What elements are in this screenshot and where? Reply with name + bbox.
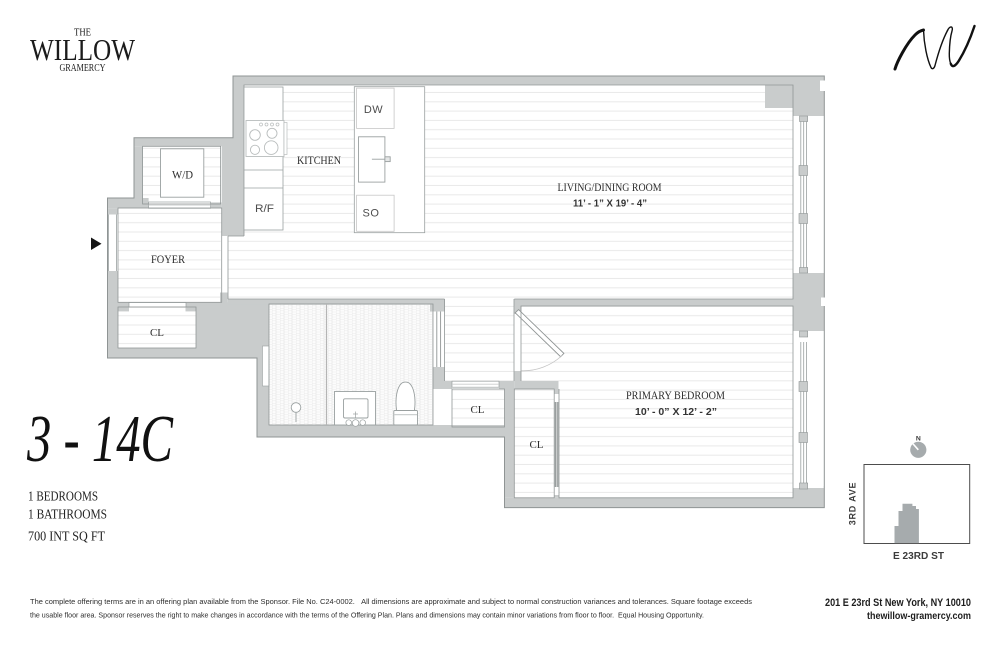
svg-text:3RD AVE: 3RD AVE [848,482,858,526]
svg-text:CL: CL [530,439,544,451]
svg-text:700 INT SQ FT: 700 INT SQ FT [28,530,105,545]
svg-text:CL: CL [471,404,485,416]
svg-text:N: N [916,436,921,443]
svg-text:10’ - 0” X 12’ - 2”: 10’ - 0” X 12’ - 2” [635,407,717,418]
svg-text:CL: CL [150,327,164,339]
svg-text:1 BATHROOMS: 1 BATHROOMS [28,508,107,523]
svg-text:GRAMERCY: GRAMERCY [60,63,106,74]
svg-text:1 BEDROOMS: 1 BEDROOMS [28,490,98,505]
svg-text:thewillow-gramercy.com: thewillow-gramercy.com [867,610,971,622]
svg-text:W/D: W/D [172,170,193,182]
svg-text:WILLOW: WILLOW [30,33,135,67]
svg-text:201 E 23rd St New York, NY 100: 201 E 23rd St New York, NY 10010 [825,597,971,609]
svg-text:E 23RD ST: E 23RD ST [893,551,944,562]
svg-text:SO: SO [363,208,380,220]
svg-text:the usable floor area. Sponsor: the usable floor area. Sponsor reserves … [30,611,704,620]
svg-text:KITCHEN: KITCHEN [297,155,342,167]
svg-text:PRIMARY BEDROOM: PRIMARY BEDROOM [626,390,725,402]
svg-text:The complete offering terms ar: The complete offering terms are in an of… [30,597,752,606]
svg-text:R/F: R/F [255,203,274,215]
svg-text:3 - 14C: 3 - 14C [26,402,174,476]
svg-text:11’ - 1” X 19’ - 4”: 11’ - 1” X 19’ - 4” [573,199,647,210]
svg-text:LIVING/DINING ROOM: LIVING/DINING ROOM [558,182,662,194]
svg-text:DW: DW [364,104,383,116]
svg-text:FOYER: FOYER [151,254,185,266]
